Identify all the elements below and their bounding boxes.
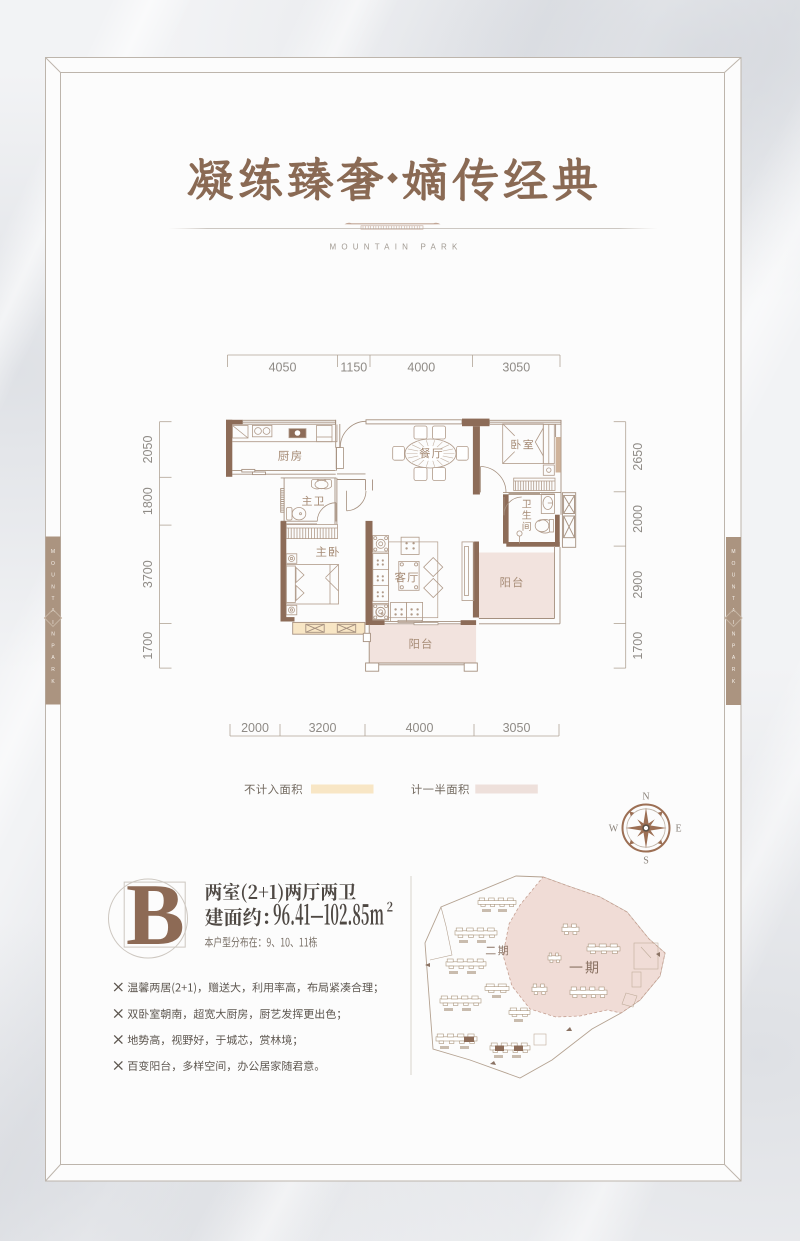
svg-text:4000: 4000 [406, 721, 434, 735]
svg-text:W: W [609, 824, 619, 835]
svg-text:3700: 3700 [141, 560, 155, 588]
svg-text:2050: 2050 [141, 436, 155, 464]
svg-text:1700: 1700 [631, 632, 645, 660]
svg-text:E: E [675, 824, 681, 835]
svg-text:2900: 2900 [631, 571, 645, 599]
svg-text:3050: 3050 [502, 361, 530, 375]
svg-text:3050: 3050 [503, 721, 531, 735]
svg-text:B: B [126, 867, 185, 964]
svg-text:4000: 4000 [407, 361, 435, 375]
svg-text:2650: 2650 [631, 443, 645, 471]
svg-text:1150: 1150 [340, 361, 367, 375]
svg-text:2000: 2000 [241, 721, 269, 735]
svg-text:4050: 4050 [269, 361, 297, 375]
svg-text:1800: 1800 [141, 487, 155, 515]
svg-text:1700: 1700 [141, 632, 155, 660]
svg-text:MOUNTAIN PARK: MOUNTAIN PARK [329, 243, 462, 252]
svg-text:S: S [643, 856, 649, 867]
svg-text:3200: 3200 [309, 721, 337, 735]
svg-text:2000: 2000 [631, 505, 645, 533]
svg-text:N: N [642, 792, 649, 803]
